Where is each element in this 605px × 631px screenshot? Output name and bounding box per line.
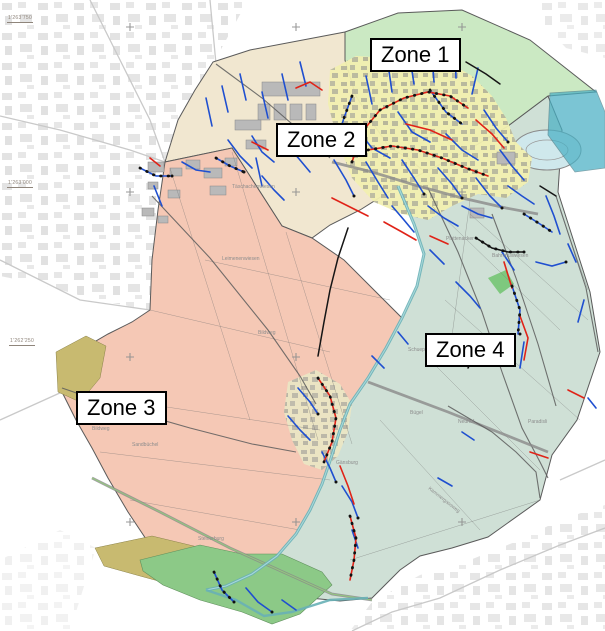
place-label: Sandbüchel — [132, 442, 158, 448]
place-label: Gänsburg — [336, 460, 358, 466]
zone-4-label: Zone 4 — [425, 333, 516, 367]
place-label: Neuhof — [458, 419, 475, 425]
zone-3-label: Zone 3 — [76, 391, 167, 425]
place-label: Leimenenwiesen — [222, 256, 260, 262]
coordinate-label: 1'262'250 — [9, 338, 35, 346]
place-label: Täschachenwiesen — [232, 184, 275, 190]
place-label: Bügel — [410, 410, 423, 416]
place-label: Bildweg — [258, 330, 276, 336]
place-label: Paradisli — [528, 419, 547, 425]
place-label: Plattenacker — [446, 236, 474, 242]
place-label: Bahnmüliwiesen — [492, 253, 529, 259]
map-canvas[interactable]: Täschachenwiesen Leimenenwiesen Bildweg … — [0, 0, 605, 631]
place-label: Bildweg — [92, 426, 110, 432]
place-label: Steinerburg — [198, 536, 224, 542]
zone-1-label: Zone 1 — [370, 38, 461, 72]
coordinate-label: 1'263'750 — [7, 15, 33, 23]
map-viewport[interactable]: Täschachenwiesen Leimenenwiesen Bildweg … — [0, 0, 605, 631]
coordinate-label: 1'263'000 — [7, 180, 33, 188]
zone-2-label: Zone 2 — [276, 123, 367, 157]
